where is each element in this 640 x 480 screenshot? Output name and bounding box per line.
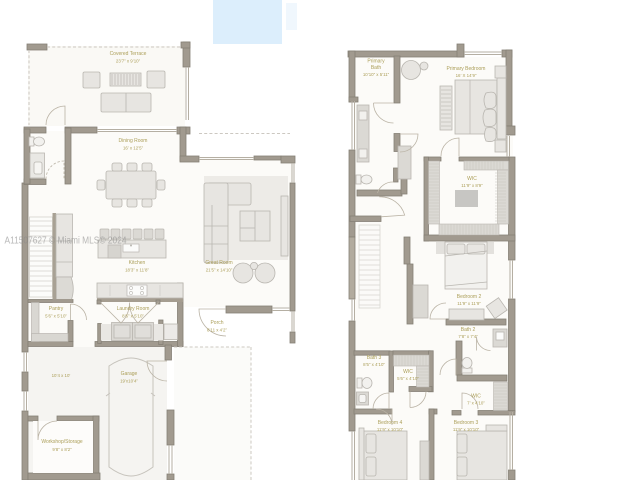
svg-text:Bath 3: Bath 3 — [367, 355, 382, 361]
svg-text:5’6” x 5’10”: 5’6” x 5’10” — [45, 314, 67, 319]
svg-text:Dining Room: Dining Room — [119, 138, 148, 144]
svg-text:10’4 x 10’: 10’4 x 10’ — [52, 373, 71, 378]
svg-text:18’3” x 11’8”: 18’3” x 11’8” — [125, 268, 149, 273]
svg-text:16’ x 12’5”: 16’ x 12’5” — [123, 146, 144, 151]
svg-text:Porch: Porch — [210, 320, 223, 326]
svg-text:8’11 x 4’2”: 8’11 x 4’2” — [207, 328, 227, 333]
svg-text:23’7” x 9’10”: 23’7” x 9’10” — [116, 59, 141, 64]
svg-text:Garage: Garage — [121, 371, 138, 377]
svg-text:Pantry: Pantry — [49, 306, 64, 312]
svg-text:19’x10’4”: 19’x10’4” — [120, 379, 138, 384]
svg-text:Laundry Room: Laundry Room — [117, 306, 150, 312]
svg-text:7’ x 4’10”: 7’ x 4’10” — [467, 401, 485, 406]
svg-text:10’10” x 5’11”: 10’10” x 5’11” — [363, 72, 390, 77]
svg-text:Workshop/Storage: Workshop/Storage — [41, 439, 83, 445]
svg-text:WIC: WIC — [403, 369, 413, 375]
svg-text:Great Room: Great Room — [205, 260, 232, 266]
svg-text:Bath: Bath — [371, 65, 382, 71]
svg-text:WIC: WIC — [471, 394, 481, 400]
svg-text:7’8” x 7’4”: 7’8” x 7’4” — [458, 334, 478, 339]
svg-text:5’6” x 4’10”: 5’6” x 4’10” — [397, 376, 419, 381]
svg-text:9’8” x 8’2”: 9’8” x 8’2” — [52, 447, 72, 452]
svg-text:11’9” x 10’10”: 11’9” x 10’10” — [453, 427, 480, 432]
svg-text:21’5” x 14’10”: 21’5” x 14’10” — [206, 268, 233, 273]
svg-text:Bedroom 4: Bedroom 4 — [378, 420, 403, 426]
svg-text:Bath 2: Bath 2 — [461, 327, 476, 333]
svg-text:Primary: Primary — [367, 59, 385, 65]
svg-text:8’6” x 5’10”: 8’6” x 5’10” — [122, 314, 144, 319]
svg-text:11’9” x 8’9”: 11’9” x 8’9” — [461, 183, 483, 188]
svg-text:11’9” x 11’9”: 11’9” x 11’9” — [457, 301, 481, 306]
svg-text:Bedroom 2: Bedroom 2 — [457, 294, 482, 300]
svg-text:A11507627 © Miami MLS© 2024: A11507627 © Miami MLS© 2024 — [5, 234, 127, 246]
svg-text:Kitchen: Kitchen — [129, 260, 146, 266]
svg-text:16’ X 14’9”: 16’ X 14’9” — [456, 73, 477, 78]
svg-text:Primary Bedroom: Primary Bedroom — [447, 66, 486, 72]
svg-text:11’9” x 10’10”: 11’9” x 10’10” — [377, 427, 404, 432]
svg-text:WIC: WIC — [467, 176, 477, 182]
svg-text:Covered Terrace: Covered Terrace — [110, 51, 147, 57]
svg-text:Bedroom 3: Bedroom 3 — [454, 420, 479, 426]
svg-text:8’5” x 4’10”: 8’5” x 4’10” — [363, 362, 385, 367]
